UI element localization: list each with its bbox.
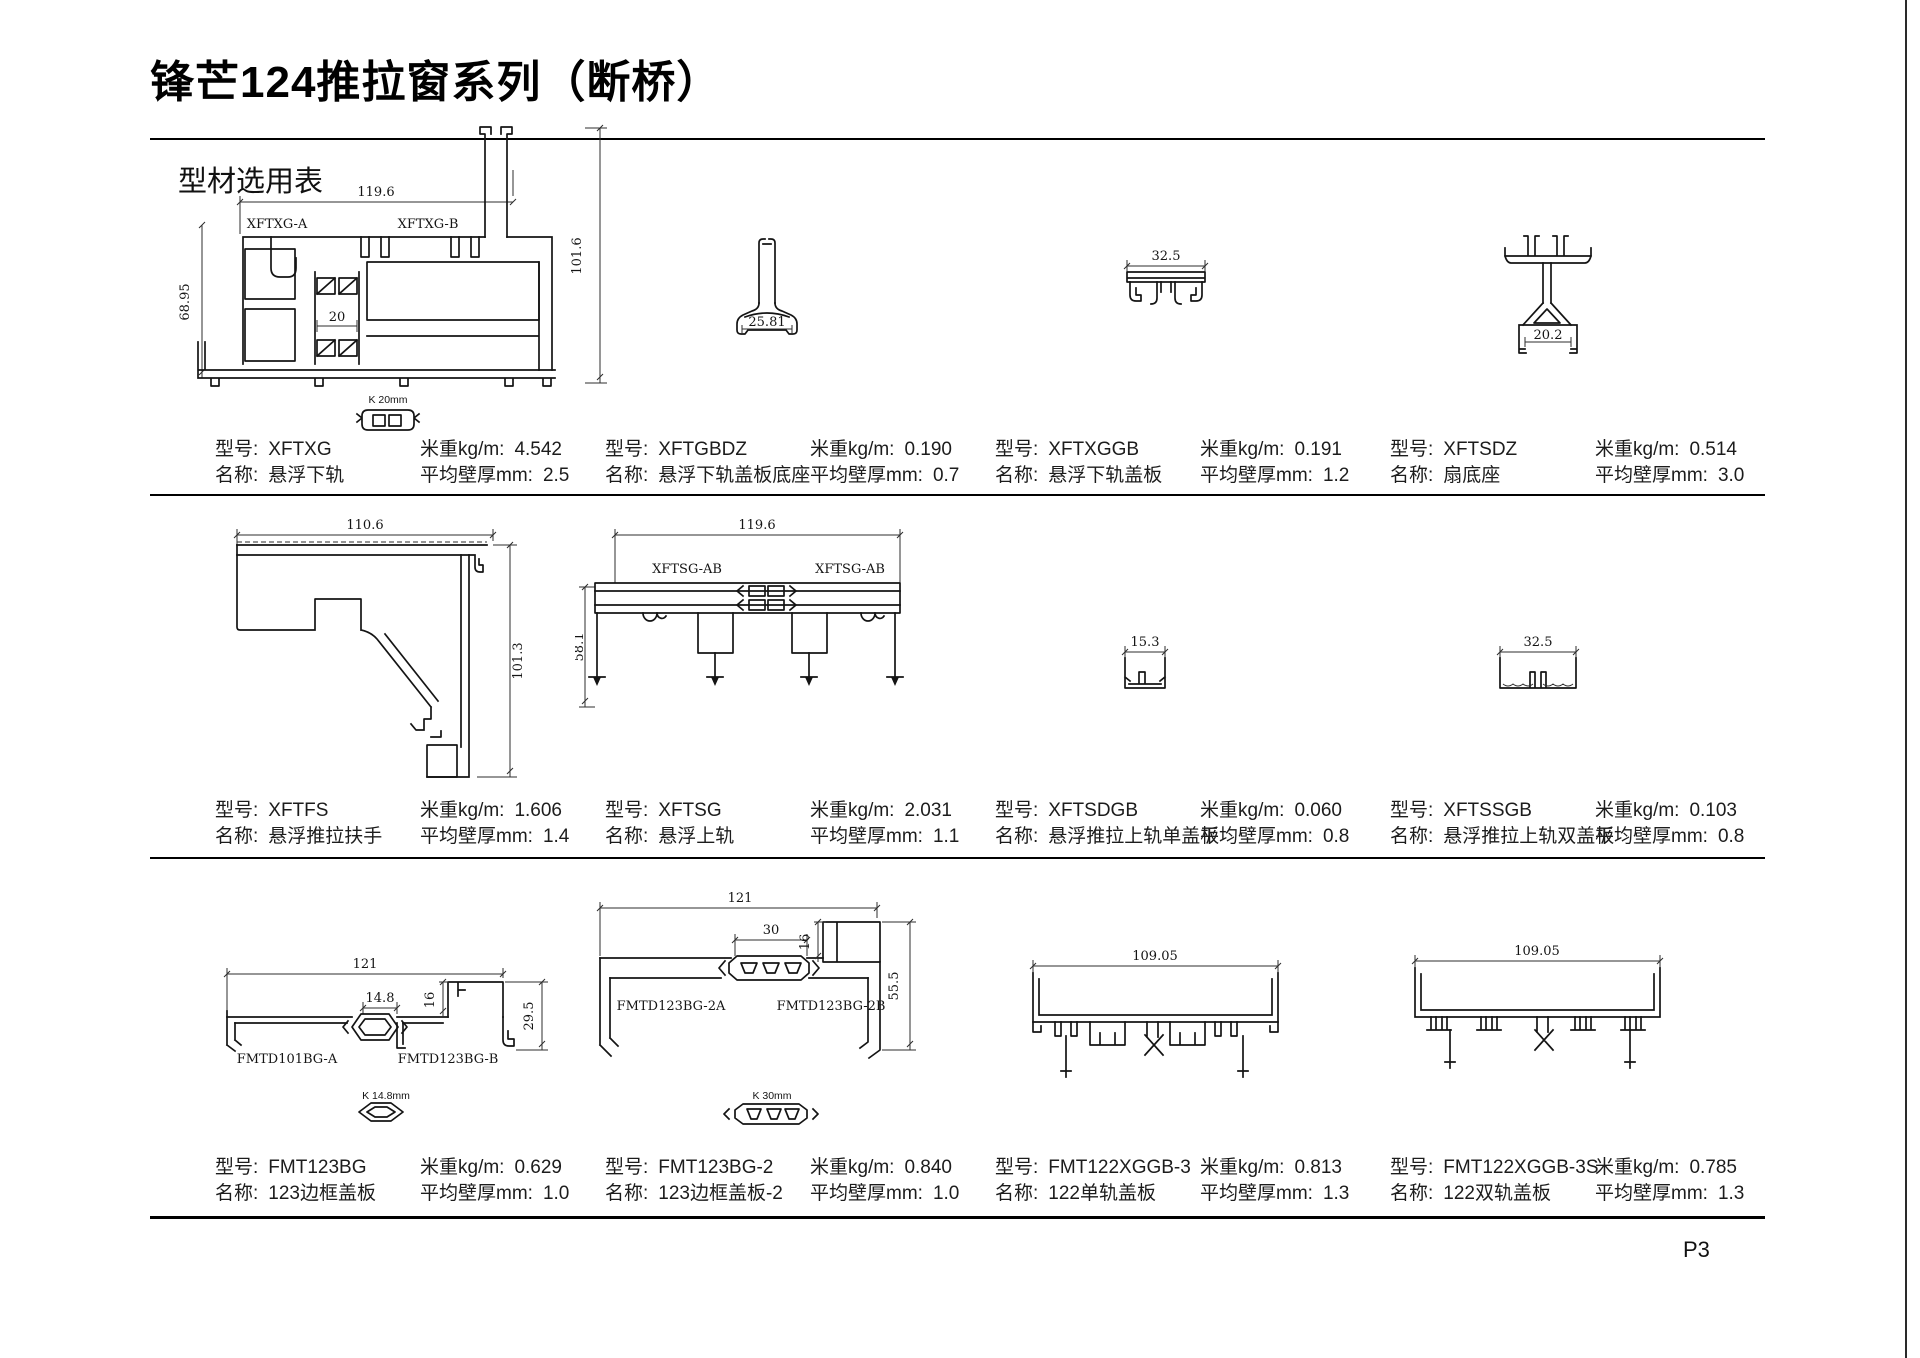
spec-xftssgb: 型号:XFTSSGB 米重kg/m:0.103 名称:悬浮推拉上轨双盖板 平均壁… [1390,798,1744,850]
model-field: 型号:XFTSDZ [1390,437,1595,463]
weight-field: 米重kg/m:0.190 [810,437,959,463]
profile-outline [480,127,512,237]
weight-value: 1.606 [514,800,562,821]
thickness-field: 平均壁厚mm:1.1 [810,824,959,850]
model-field: 型号:FMT123BG-2 [605,1155,810,1181]
model-field: 型号:XFTFS [215,798,420,824]
dim-width: 109.05 [1514,944,1560,959]
thickness-value: 1.0 [543,1183,569,1204]
name-field: 名称:悬浮推拉上轨单盖板 [995,824,1200,850]
dim-width: 32.5 [1524,635,1553,650]
weight-field: 米重kg/m:0.060 [1200,798,1349,824]
name-field: 名称:123边框盖板-2 [605,1181,810,1207]
thickness-value: 2.5 [543,465,569,486]
model-value: FMT123BG-2 [658,1157,773,1178]
weight-value: 0.629 [514,1157,562,1178]
drawing-xftgbdz: 25.81 [725,230,825,342]
dim-height: 101.3 [511,642,526,679]
dim-step-height: 16 [798,934,813,951]
weight-value: 0.785 [1689,1157,1737,1178]
spec-fmt122xggb-3: 型号:FMT122XGGB-3 米重kg/m:0.813 名称:122单轨盖板 … [995,1155,1349,1207]
model-field: 型号:XFTSG [605,798,810,824]
name-field: 名称:122双轨盖板 [1390,1181,1595,1207]
profile-outline [600,958,868,978]
insert-label: K 30mm [752,1090,791,1102]
weight-value: 0.190 [904,439,952,460]
insert-label: K 14.8mm [362,1090,410,1102]
name-field: 名称:123边框盖板 [215,1181,420,1207]
model-field: 型号:XFTSSGB [1390,798,1595,824]
weight-field: 米重kg/m:0.514 [1595,437,1744,463]
spec-xftgbdz: 型号:XFTGBDZ 米重kg/m:0.190 名称:悬浮下轨盖板底座 平均壁厚… [605,437,959,489]
name-value: 悬浮推拉扶手 [268,826,382,847]
part-label-b: XFTSG-AB [815,562,885,577]
dim-base-width: 25.81 [748,315,785,330]
model-value: FMT122XGGB-3S [1443,1157,1598,1178]
page-title: 锋芒124推拉窗系列（断桥） [150,46,721,110]
dim-width: 109.05 [1132,949,1178,964]
weight-value: 0.191 [1294,439,1342,460]
insert-label: K 20mm [368,394,407,406]
weight-field: 米重kg/m:0.103 [1595,798,1744,824]
thickness-field: 平均壁厚mm:0.7 [810,463,959,489]
name-value: 悬浮上轨 [658,826,734,847]
drawing-fmt122xggb-3: 109.05 [1025,945,1295,1085]
part-label-a: FMTD123BG-2A [617,999,726,1014]
name-field: 名称:悬浮下轨盖板 [995,463,1200,489]
drawing-xftsdz: 20.2 [1495,225,1605,357]
name-value: 悬浮下轨盖板底座 [658,465,810,486]
drawing-xftsg: 119.6 58.1 XFTSG-AB XFTSG-AB [575,515,920,730]
thickness-value: 1.4 [543,826,569,847]
insert-glyph [357,410,419,430]
thickness-value: 0.8 [1718,826,1744,847]
model-field: 型号:XFTXGGB [995,437,1200,463]
name-value: 123边框盖板-2 [658,1183,783,1204]
page-number: P3 [1683,1237,1710,1263]
weight-field: 米重kg/m:4.542 [420,437,569,463]
model-value: XFTSG [658,800,721,821]
insert-glyph [359,1103,403,1121]
spec-fmt123bg: 型号:FMT123BG 米重kg/m:0.629 名称:123边框盖板 平均壁厚… [215,1155,569,1207]
dim-width: 119.6 [357,185,394,200]
name-value: 悬浮下轨 [268,465,344,486]
name-field: 名称:悬浮推拉扶手 [215,824,420,850]
model-value: FMT123BG [268,1157,366,1178]
drawing-xftssgb: 32.5 [1488,630,1592,696]
dim-width: 110.6 [346,518,383,533]
weight-value: 0.103 [1689,800,1737,821]
part-label-b: FMTD123BG-B [398,1052,499,1067]
weight-field: 米重kg/m:0.785 [1595,1155,1744,1181]
dim-width: 121 [353,957,378,972]
profile-outline [759,239,775,303]
dim-height: 58.1 [575,633,587,662]
name-value: 悬浮推拉上轨双盖板 [1443,826,1614,847]
model-value: XFTGBDZ [658,439,747,460]
profile-outline [1033,973,1278,1022]
name-value: 122单轨盖板 [1048,1183,1156,1204]
thickness-field: 平均壁厚mm:1.4 [420,824,569,850]
spec-xftxggb: 型号:XFTXGGB 米重kg/m:0.191 名称:悬浮下轨盖板 平均壁厚mm… [995,437,1349,489]
dim-insert-width: 14.8 [366,991,395,1006]
weight-field: 米重kg/m:0.629 [420,1155,569,1181]
part-label-b: XFTXG-B [398,217,459,232]
drawing-fmt123bg: 121 14.8 16 29.5 FMTD101BG-A FMTD123BG-B… [215,950,565,1130]
thickness-value: 0.8 [1323,826,1349,847]
thickness-value: 0.7 [933,465,959,486]
part-label-a: FMTD101BG-A [237,1052,338,1067]
weight-field: 米重kg/m:1.606 [420,798,569,824]
page-right-border [1905,0,1907,1358]
profile-outline [1127,272,1205,282]
dim-base-width: 20.2 [1534,328,1563,343]
weight-value: 2.031 [904,800,952,821]
weight-field: 米重kg/m:2.031 [810,798,959,824]
dim-step-height: 16 [423,992,438,1009]
dim-end-height: 55.5 [887,972,902,1001]
profile-outline [1415,968,1660,1017]
thickness-value: 1.3 [1323,1183,1349,1204]
profile-outline [1524,236,1568,255]
catalog-page: 锋芒124推拉窗系列（断桥） 型材选用表 119.6 68.95 101.6 X… [0,0,1920,1358]
spec-xftsdz: 型号:XFTSDZ 米重kg/m:0.514 名称:扇底座 平均壁厚mm:3.0 [1390,437,1744,489]
thickness-field: 平均壁厚mm:3.0 [1595,463,1744,489]
weight-value: 0.813 [1294,1157,1342,1178]
spec-xftsdgb: 型号:XFTSDGB 米重kg/m:0.060 名称:悬浮推拉上轨单盖板 平均壁… [995,798,1349,850]
model-field: 型号:XFTXG [215,437,420,463]
weight-value: 0.514 [1689,439,1737,460]
thickness-field: 平均壁厚mm:1.2 [1200,463,1349,489]
model-value: XFTSSGB [1443,800,1532,821]
name-field: 名称:扇底座 [1390,463,1595,489]
dim-width: 121 [728,891,753,906]
part-label-a: XFTSG-AB [652,562,722,577]
model-value: XFTXG [268,439,331,460]
insert-glyph [724,1104,818,1124]
weight-field: 米重kg/m:0.840 [810,1155,959,1181]
thickness-field: 平均壁厚mm:1.3 [1595,1181,1744,1207]
profile-outline [237,545,487,572]
name-value: 扇底座 [1443,465,1500,486]
thickness-field: 平均壁厚mm:2.5 [420,463,569,489]
model-field: 型号:XFTGBDZ [605,437,810,463]
profile-outline [1500,658,1576,688]
thickness-field: 平均壁厚mm:1.0 [810,1181,959,1207]
name-value: 123边框盖板 [268,1183,376,1204]
name-field: 名称:悬浮推拉上轨双盖板 [1390,824,1595,850]
part-label-b: FMTD123BG-2B [777,999,886,1014]
weight-value: 4.542 [514,439,562,460]
spec-xftxg: 型号:XFTXG 米重kg/m:4.542 名称:悬浮下轨 平均壁厚mm:2.5 [215,437,569,489]
part-label-a: XFTXG-A [247,217,308,232]
model-field: 型号:FMT122XGGB-3S [1390,1155,1595,1181]
spec-fmt123bg-2: 型号:FMT123BG-2 米重kg/m:0.840 名称:123边框盖板-2 … [605,1155,959,1207]
dim-width: 15.3 [1131,635,1160,650]
thickness-field: 平均壁厚mm:1.3 [1200,1181,1349,1207]
drawing-xftxggb: 32.5 [1115,240,1215,312]
weight-field: 米重kg/m:0.191 [1200,437,1349,463]
row-divider-2 [150,857,1765,859]
name-value: 122双轨盖板 [1443,1183,1551,1204]
name-field: 名称:悬浮下轨盖板底座 [605,463,810,489]
profile-outline [1125,658,1165,688]
row-divider-1 [150,494,1765,496]
thickness-field: 平均壁厚mm:0.8 [1595,824,1744,850]
spec-fmt122xggb-3s: 型号:FMT122XGGB-3S 米重kg/m:0.785 名称:122双轨盖板… [1390,1155,1744,1207]
profile-outline [227,1017,448,1023]
thickness-value: 1.2 [1323,465,1349,486]
profile-outline [595,583,900,613]
dim-break-width: 20 [329,310,346,325]
dim-insert-width: 30 [763,923,780,938]
model-value: XFTSDZ [1443,439,1517,460]
name-field: 名称:悬浮上轨 [605,824,810,850]
drawing-fmt122xggb-3s: 109.05 [1405,940,1675,1075]
name-field: 名称:122单轨盖板 [995,1181,1200,1207]
model-field: 型号:FMT122XGGB-3 [995,1155,1200,1181]
row-divider-3 [150,1216,1765,1219]
thickness-value: 1.1 [933,826,959,847]
spec-xftfs: 型号:XFTFS 米重kg/m:1.606 名称:悬浮推拉扶手 平均壁厚mm:1… [215,798,569,850]
thickness-value: 1.0 [933,1183,959,1204]
model-field: 型号:FMT123BG [215,1155,420,1181]
model-field: 型号:XFTSDGB [995,798,1200,824]
thermal-break-hatch [737,586,796,610]
name-value: 悬浮推拉上轨单盖板 [1048,826,1219,847]
dim-width: 119.6 [738,518,775,533]
dim-left-height: 68.95 [178,283,193,320]
drawing-xftxg: 119.6 68.95 101.6 XFTXG-A XFTXG-B 20 K 2… [175,112,615,442]
spec-xftsg: 型号:XFTSG 米重kg/m:2.031 名称:悬浮上轨 平均壁厚mm:1.1 [605,798,959,850]
thickness-field: 平均壁厚mm:0.8 [1200,824,1349,850]
weight-value: 0.060 [1294,800,1342,821]
name-field: 名称:悬浮下轨 [215,463,420,489]
dim-end-height: 29.5 [522,1002,537,1031]
dim-total-height: 101.6 [570,237,585,274]
model-value: XFTFS [268,800,328,821]
thickness-value: 1.3 [1718,1183,1744,1204]
weight-value: 0.840 [904,1157,952,1178]
model-value: XFTXGGB [1048,439,1139,460]
weight-field: 米重kg/m:0.813 [1200,1155,1349,1181]
drawing-fmt123bg-2: 121 30 16 55.5 FMTD123BG-2A FMTD123BG-2B… [595,890,935,1135]
name-value: 悬浮下轨盖板 [1048,465,1162,486]
drawing-xftfs: 110.6 101.3 [225,515,530,815]
drawing-xftsdgb: 15.3 [1108,630,1182,696]
model-value: XFTSDGB [1048,800,1138,821]
model-value: FMT122XGGB-3 [1048,1157,1191,1178]
dim-width: 32.5 [1152,249,1181,264]
thickness-value: 3.0 [1718,465,1744,486]
thickness-field: 平均壁厚mm:1.0 [420,1181,569,1207]
